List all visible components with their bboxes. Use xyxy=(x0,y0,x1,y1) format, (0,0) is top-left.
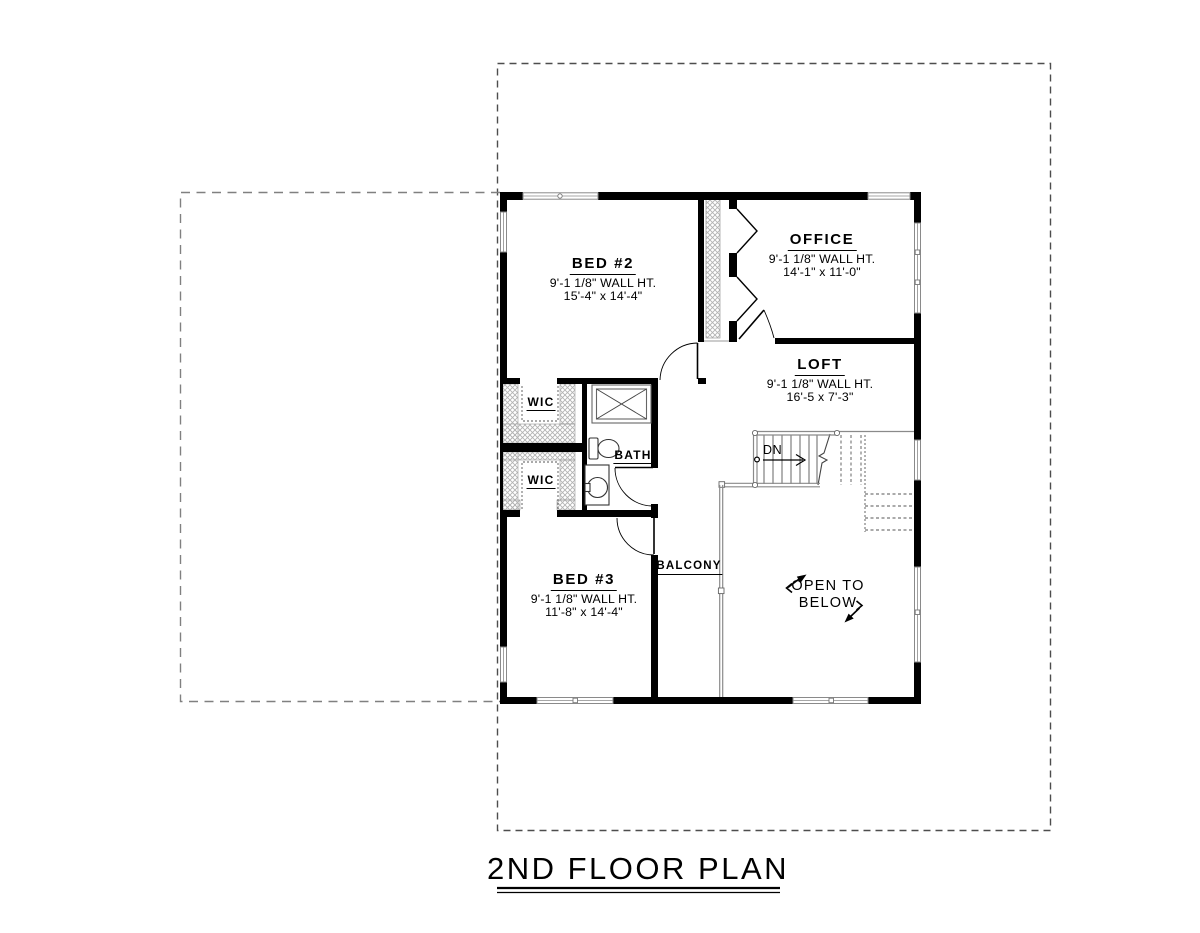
stair-rails xyxy=(722,432,914,488)
open-to-below-line2: BELOW xyxy=(799,595,857,612)
room-dimensions: 16'-5 x 7'-3" xyxy=(786,391,853,404)
room-name: WIC xyxy=(527,396,556,411)
room-wall-height: 9'-1 1/8" WALL HT. xyxy=(769,253,875,266)
newel-posts xyxy=(719,430,840,487)
stairs xyxy=(719,430,914,532)
garage-roof-outline-dashed xyxy=(181,193,501,702)
room-label-bed3: BED #3 9'-1 1/8" WALL HT. 11'-8" x 14'-4… xyxy=(531,572,637,620)
room-label-office: OFFICE 9'-1 1/8" WALL HT. 14'-1" x 11'-0… xyxy=(769,232,875,280)
bath-door-icon xyxy=(615,468,653,507)
room-dimensions: 15'-4" x 14'-4" xyxy=(564,290,643,303)
balcony-railing xyxy=(718,485,724,697)
room-name: BATH xyxy=(613,449,652,464)
room-name: WIC xyxy=(527,474,556,489)
room-label-wic-lower: WIC xyxy=(527,474,556,489)
room-label-wic-upper: WIC xyxy=(527,396,556,411)
bed3-door-icon xyxy=(617,518,654,555)
room-name: BED #2 xyxy=(570,256,636,275)
door-swings xyxy=(615,310,774,555)
shower-icon xyxy=(592,385,651,423)
bifold-door-icon xyxy=(737,209,757,321)
room-label-bath: BATH xyxy=(613,449,652,464)
room-wall-height: 9'-1 1/8" WALL HT. xyxy=(767,378,873,391)
room-wall-height: 9'-1 1/8" WALL HT. xyxy=(550,277,656,290)
room-name: BED #3 xyxy=(551,572,617,591)
office-door-icon xyxy=(739,310,774,339)
bed2-door-icon xyxy=(660,343,698,380)
room-name: LOFT xyxy=(795,357,845,376)
room-name: BALCONY xyxy=(655,560,722,575)
room-label-balcony: BALCONY xyxy=(655,560,722,575)
office-closet-hatch xyxy=(704,198,729,341)
title-underline xyxy=(497,888,780,893)
page-title: 2ND FLOOR PLAN xyxy=(487,851,789,887)
room-label-bed2: BED #2 9'-1 1/8" WALL HT. 15'-4" x 14'-4… xyxy=(550,256,656,304)
plan-geometry xyxy=(0,0,1200,933)
stairs-down-label: DN xyxy=(763,443,782,457)
sink-icon xyxy=(585,465,609,505)
room-wall-height: 9'-1 1/8" WALL HT. xyxy=(531,593,637,606)
room-dimensions: 14'-1" x 11'-0" xyxy=(783,266,861,279)
room-dimensions: 11'-8" x 14'-4" xyxy=(545,606,623,619)
stair-hidden-treads xyxy=(841,435,913,532)
floor-plan-canvas: BED #2 9'-1 1/8" WALL HT. 15'-4" x 14'-4… xyxy=(0,0,1200,933)
open-to-below-line1: OPEN TO xyxy=(791,578,864,595)
room-label-loft: LOFT 9'-1 1/8" WALL HT. 16'-5 x 7'-3" xyxy=(767,357,873,405)
bath-fixtures xyxy=(585,385,651,505)
stair-break-line xyxy=(818,434,830,485)
room-name: OFFICE xyxy=(788,232,857,251)
open-to-below-label: OPEN TO BELOW xyxy=(791,578,864,611)
